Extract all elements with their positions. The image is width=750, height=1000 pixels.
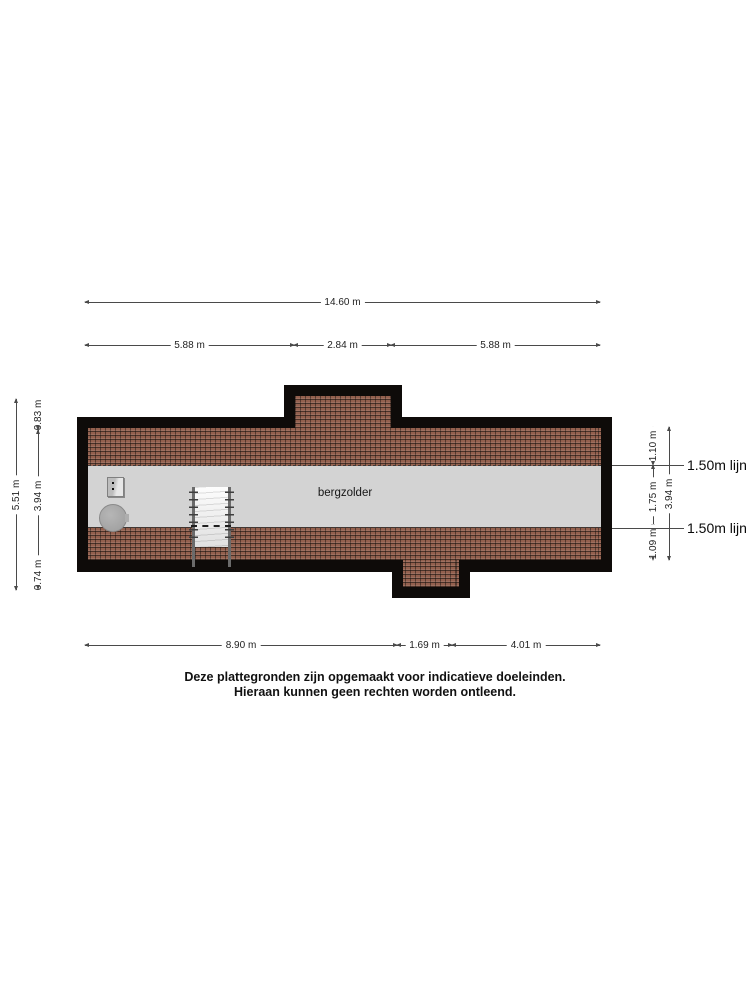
- dim-left-seg-2-label: 3.94 m: [33, 476, 45, 515]
- flue-circle-icon: [99, 504, 127, 532]
- dim-right-seg-2-label: 1.75 m: [648, 477, 660, 516]
- roof-area-top-dormer: [295, 396, 391, 428]
- dim-top-seg-2-label: 2.84 m: [323, 340, 362, 352]
- dim-right-seg-3: 1.09 m: [653, 528, 654, 560]
- dim-top-seg-3-label: 5.88 m: [476, 340, 515, 352]
- dim-top-seg-1-label: 5.88 m: [170, 340, 209, 352]
- dim-right-seg-1-label: 1.10 m: [648, 427, 660, 466]
- dim-top-total: 14.60 m: [85, 302, 600, 303]
- dim-bottom-seg-3: 4.01 m: [452, 645, 600, 646]
- dim-right-seg-1: 1.10 m: [653, 427, 654, 465]
- dim-left-seg-1: 0.83 m: [38, 399, 39, 430]
- height-limit-line-top: [88, 465, 601, 466]
- dim-top-seg-2: 2.84 m: [294, 345, 391, 346]
- dim-bottom-seg-1-label: 8.90 m: [222, 640, 261, 652]
- dim-left-seg-3: 0.74 m: [38, 561, 39, 589]
- dim-top-seg-1: 5.88 m: [85, 345, 294, 346]
- dim-left-total: 5.51 m: [16, 399, 17, 590]
- floorplan-page: bergzolder 14.60 m 5.88 m 2.84 m 5.88 m …: [0, 0, 750, 1000]
- dim-bottom-seg-3-label: 4.01 m: [507, 640, 546, 652]
- dim-right-total-label: 3.94 m: [664, 474, 676, 513]
- mechanical-unit-icon: [107, 477, 124, 497]
- callout-line-top: [612, 465, 684, 466]
- dim-left-seg-3-label: 0.74 m: [33, 556, 45, 595]
- disclaimer-line-1: Deze plattegronden zijn opgemaakt voor i…: [0, 670, 750, 685]
- roof-area-bottom-dormer: [403, 560, 459, 587]
- dim-top-total-label: 14.60 m: [320, 297, 364, 309]
- dim-right-total: 3.94 m: [669, 427, 670, 560]
- dim-top-seg-3: 5.88 m: [391, 345, 600, 346]
- dim-right-seg-3-label: 1.09 m: [648, 525, 660, 564]
- dim-bottom-seg-2: 1.69 m: [397, 645, 452, 646]
- dim-left-total-label: 5.51 m: [11, 475, 23, 514]
- staircase-left-balusters-icon: [189, 490, 198, 538]
- callout-label-bottom: 1.50m lijn: [687, 521, 747, 535]
- dim-bottom-seg-1: 8.90 m: [85, 645, 397, 646]
- staircase-right-balusters-icon: [225, 490, 234, 538]
- dim-right-seg-2: 1.75 m: [653, 465, 654, 528]
- dim-bottom-seg-2-label: 1.69 m: [405, 640, 444, 652]
- flue-circle-tab-icon: [125, 514, 129, 522]
- callout-label-top: 1.50m lijn: [687, 458, 747, 472]
- disclaimer-line-2: Hieraan kunnen geen rechten worden ontle…: [0, 685, 750, 700]
- height-limit-line-bottom: [88, 527, 601, 528]
- callout-line-bottom: [612, 528, 684, 529]
- room-label: bergzolder: [300, 487, 390, 499]
- staircase-height-dash-icon: [191, 525, 231, 527]
- staircase-treads-icon: [195, 487, 228, 547]
- disclaimer: Deze plattegronden zijn opgemaakt voor i…: [0, 670, 750, 700]
- dim-left-seg-2: 3.94 m: [38, 430, 39, 561]
- mechanical-unit-dots-icon: [112, 482, 114, 484]
- dim-left-seg-1-label: 0.83 m: [33, 395, 45, 434]
